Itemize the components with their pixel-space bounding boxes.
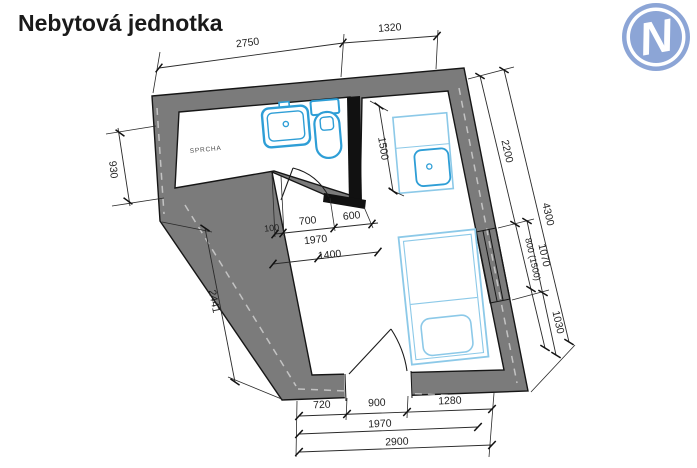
dim-label-mid-600: 600: [342, 209, 361, 223]
dim-label-top-2750: 2750: [235, 36, 260, 51]
dim-label-right-4300: 4300: [539, 202, 556, 228]
page-title: Nebytová jednotka: [18, 10, 223, 36]
dim-label-right-2200: 2200: [498, 139, 515, 165]
dim-label-bottom-900: 900: [368, 397, 386, 410]
dim-label-top-1320: 1320: [378, 21, 402, 35]
dim-label-right-1030: 1030: [549, 310, 566, 336]
dim-label-mid-1970: 1970: [303, 233, 328, 247]
kitchen-counter: [393, 113, 453, 193]
dim-label-bottom-1280: 1280: [438, 394, 462, 407]
toilet-seat-detail: [320, 116, 334, 130]
dim-label-bottom-1970: 1970: [368, 417, 392, 430]
bed-pillow: [420, 314, 474, 356]
dim-label-mid-1400: 1400: [317, 248, 342, 262]
floor-plan-canvas: Nebytová jednotka N SPR: [0, 0, 697, 468]
entrance-opening: [344, 329, 412, 402]
dim-label-mid-100: 100: [264, 222, 280, 234]
dim-label-bottom-720: 720: [313, 399, 331, 412]
dim-label-left-930: 930: [106, 160, 120, 179]
dim-label-mid-700: 700: [298, 214, 317, 228]
dim-label-bottom-2900: 2900: [385, 435, 409, 448]
floor-plan-drawing: Nebytová jednotka N SPR: [0, 0, 697, 468]
dim-label-mid-1500: 1500: [375, 136, 391, 161]
bed: [399, 229, 489, 364]
dim-bottom: 720 900 1280 1970 2900: [295, 393, 496, 457]
room-label-sprcha: SPRCHA: [190, 145, 222, 155]
washbasin: [261, 100, 311, 148]
washbasin-drain: [283, 121, 289, 127]
toilet: [310, 99, 343, 159]
company-logo: N: [622, 3, 690, 71]
kitchen-sink-drain: [426, 164, 432, 170]
